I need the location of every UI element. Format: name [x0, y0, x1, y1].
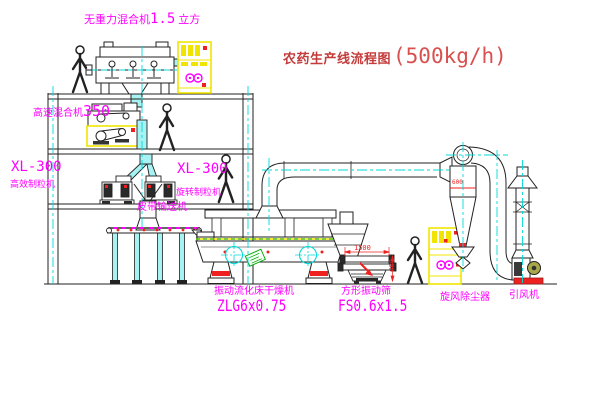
- high-speed-mixer-name: 高速混合机: [33, 108, 83, 119]
- worker-figure: [73, 46, 87, 92]
- fluid-bed-dryer: [196, 210, 345, 284]
- dryer-model-text: ZLG6x0.75: [217, 298, 286, 314]
- label-sieve-model: FS0.6x1.5: [338, 298, 425, 315]
- label-granulator-center-name: 旋转制粒机: [176, 188, 221, 197]
- dim-sieve-length: 1500: [354, 245, 371, 252]
- y-branch-pipe: [116, 154, 161, 182]
- high-speed-mixer-spec: 350: [83, 102, 110, 120]
- gravity-mixer-spec: 1.5: [150, 11, 175, 27]
- label-granulator-center-model: XL-300: [177, 162, 228, 176]
- label-granulator-left-name: 高效制粒机: [10, 180, 55, 189]
- gravity-mixer: [86, 42, 184, 106]
- diagram-title: 农药生产线流程图 (500kg/h): [283, 46, 507, 67]
- gravity-mixer-unit: 立方: [178, 14, 200, 26]
- control-cabinet-top: [178, 42, 211, 93]
- dim-cyclone: 600: [452, 180, 463, 186]
- worker-figure: [408, 237, 422, 283]
- label-fan: 引风机: [509, 291, 539, 301]
- sieve-model-text: FS0.6x1.5: [338, 298, 407, 314]
- worker-figure: [160, 104, 174, 150]
- label-cyclone: 旋风除尘器: [440, 293, 490, 303]
- process-flow-diagram: 农药生产线流程图 (500kg/h) 无重力混合机1.5立方 高速混合机350 …: [0, 0, 600, 403]
- exhaust-duct: [256, 157, 452, 218]
- label-dryer-model: ZLG6x0.75: [217, 298, 304, 315]
- title-capacity: (500kg/h): [393, 46, 507, 67]
- label-gravity-mixer: 无重力混合机1.5立方: [84, 11, 200, 27]
- gravity-mixer-name: 无重力混合机: [84, 14, 150, 26]
- label-belt-conveyor: 皮带输送机: [137, 203, 187, 213]
- control-cabinet-right: [429, 228, 461, 284]
- label-high-speed-mixer: 高速混合机350: [33, 104, 110, 120]
- label-granulator-left-model: XL-300: [11, 160, 62, 174]
- granulator-left: [100, 182, 134, 204]
- title-text: 农药生产线流程图: [283, 52, 391, 65]
- induced-draft-fan: [512, 258, 543, 284]
- dim-sieve-width: 600: [387, 259, 394, 272]
